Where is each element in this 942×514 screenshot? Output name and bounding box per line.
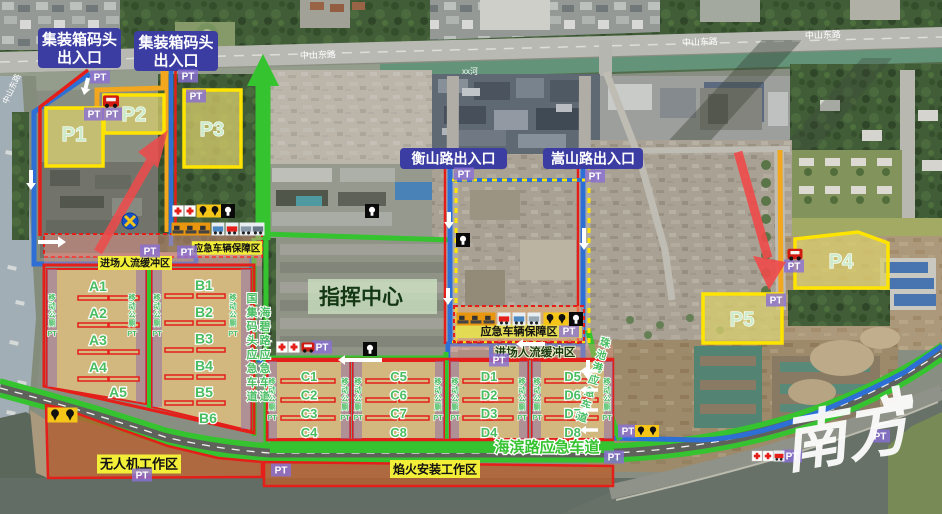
svg-text:厕: 厕 xyxy=(354,403,362,412)
svg-text:P1: P1 xyxy=(62,124,86,146)
svg-text:PT: PT xyxy=(563,327,576,338)
svg-text:厕: 厕 xyxy=(533,403,541,412)
svg-text:集: 集 xyxy=(246,305,259,319)
svg-text:厕: 厕 xyxy=(518,403,526,412)
svg-text:A4: A4 xyxy=(89,359,107,375)
svg-text:PT: PT xyxy=(47,329,57,338)
svg-text:B4: B4 xyxy=(195,357,213,373)
svg-text:国: 国 xyxy=(247,292,258,305)
svg-text:动: 动 xyxy=(451,385,459,395)
svg-text:中山东路: 中山东路 xyxy=(805,28,841,40)
svg-text:PT: PT xyxy=(182,72,195,83)
svg-text:PT: PT xyxy=(316,343,329,354)
svg-text:PT: PT xyxy=(94,73,107,84)
svg-text:A2: A2 xyxy=(89,305,107,321)
svg-text:出入口: 出入口 xyxy=(153,51,198,69)
svg-text:动: 动 xyxy=(533,385,541,395)
svg-text:PT: PT xyxy=(788,262,801,273)
svg-text:动: 动 xyxy=(603,385,611,395)
svg-text:PT: PT xyxy=(127,329,137,338)
svg-text:B1: B1 xyxy=(195,277,213,293)
svg-text:P4: P4 xyxy=(829,251,854,273)
svg-text:D1: D1 xyxy=(481,369,498,384)
svg-text:移: 移 xyxy=(603,376,611,386)
svg-text:动: 动 xyxy=(229,301,237,311)
svg-text:厕: 厕 xyxy=(153,319,161,328)
svg-text:B6: B6 xyxy=(199,410,217,426)
svg-text:B3: B3 xyxy=(195,331,213,347)
svg-text:出入口: 出入口 xyxy=(57,48,102,66)
svg-text:车: 车 xyxy=(247,375,258,389)
svg-text:PT: PT xyxy=(136,471,149,482)
svg-text:应: 应 xyxy=(260,347,271,361)
svg-text:C6: C6 xyxy=(390,388,407,403)
svg-text:P3: P3 xyxy=(200,119,224,141)
svg-text:C5: C5 xyxy=(390,369,407,384)
svg-text:PT: PT xyxy=(589,172,602,183)
svg-text:急: 急 xyxy=(247,361,258,375)
svg-text:移: 移 xyxy=(341,376,349,386)
svg-text:急: 急 xyxy=(260,361,271,375)
svg-text:PT: PT xyxy=(450,413,460,422)
svg-text:PT: PT xyxy=(106,110,119,121)
svg-text:动: 动 xyxy=(518,385,526,395)
svg-text:C1: C1 xyxy=(301,369,318,384)
svg-text:厕: 厕 xyxy=(341,403,349,412)
svg-text:应急车辆保障区: 应急车辆保障区 xyxy=(481,324,558,338)
svg-text:焰火安装工作区: 焰火安装工作区 xyxy=(393,461,477,476)
svg-text:动: 动 xyxy=(128,301,136,311)
svg-text:移: 移 xyxy=(153,292,161,302)
svg-text:B2: B2 xyxy=(195,304,213,320)
svg-text:D2: D2 xyxy=(481,388,498,403)
svg-text:PT: PT xyxy=(532,413,542,422)
svg-text:衡山路出入口: 衡山路出入口 xyxy=(412,151,496,167)
svg-text:道: 道 xyxy=(247,389,258,403)
svg-text:PT: PT xyxy=(770,296,783,307)
svg-text:移: 移 xyxy=(128,292,136,302)
svg-text:PT: PT xyxy=(144,247,157,258)
svg-text:中山东路: 中山东路 xyxy=(300,48,336,60)
svg-text:移: 移 xyxy=(451,376,459,386)
svg-text:PT: PT xyxy=(433,413,443,422)
svg-text:碧: 碧 xyxy=(259,319,271,333)
svg-text:PT: PT xyxy=(275,466,288,477)
svg-text:应急车辆保障区: 应急车辆保障区 xyxy=(194,242,261,254)
svg-text:移: 移 xyxy=(518,376,526,386)
svg-text:动: 动 xyxy=(341,385,349,395)
svg-text:PT: PT xyxy=(622,427,635,438)
svg-text:P5: P5 xyxy=(730,309,754,331)
svg-text:PT: PT xyxy=(228,329,238,338)
svg-text:PT: PT xyxy=(608,453,621,464)
svg-text:指挥中心: 指挥中心 xyxy=(319,286,403,309)
svg-text:A3: A3 xyxy=(89,332,107,348)
svg-text:A5: A5 xyxy=(109,384,127,400)
svg-text:B5: B5 xyxy=(195,384,213,400)
svg-text:C4: C4 xyxy=(301,425,318,440)
svg-text:进场人流缓冲区: 进场人流缓冲区 xyxy=(100,257,170,270)
svg-text:D4: D4 xyxy=(481,425,498,440)
svg-text:海滨路应急车道: 海滨路应急车道 xyxy=(494,438,599,456)
svg-text:P2: P2 xyxy=(122,104,146,126)
svg-text:PT: PT xyxy=(602,413,612,422)
svg-text:移: 移 xyxy=(268,376,276,386)
svg-text:xx河: xx河 xyxy=(462,66,478,76)
svg-text:C8: C8 xyxy=(390,425,407,440)
svg-text:PT: PT xyxy=(340,413,350,422)
svg-text:码: 码 xyxy=(247,320,258,333)
svg-text:动: 动 xyxy=(434,385,442,395)
svg-text:路: 路 xyxy=(260,333,272,347)
svg-text:移: 移 xyxy=(48,292,56,302)
svg-text:集装箱码头: 集装箱码头 xyxy=(41,30,117,48)
svg-text:C3: C3 xyxy=(301,406,318,421)
svg-text:动: 动 xyxy=(48,301,56,311)
svg-text:厕: 厕 xyxy=(268,403,276,412)
svg-text:厕: 厕 xyxy=(229,319,237,328)
svg-text:D8: D8 xyxy=(564,425,581,440)
svg-text:移: 移 xyxy=(354,376,362,386)
svg-text:移: 移 xyxy=(229,292,237,302)
svg-text:PT: PT xyxy=(353,413,363,422)
svg-text:PT: PT xyxy=(267,413,277,422)
svg-text:厕: 厕 xyxy=(451,403,459,412)
svg-text:嵩山路出入口: 嵩山路出入口 xyxy=(551,151,635,167)
svg-text:PT: PT xyxy=(152,329,162,338)
svg-text:厕: 厕 xyxy=(128,319,136,328)
svg-text:动: 动 xyxy=(153,301,161,311)
svg-text:移: 移 xyxy=(533,376,541,386)
svg-text:动: 动 xyxy=(354,385,362,395)
svg-text:集装箱码头: 集装箱码头 xyxy=(137,33,213,51)
svg-text:动: 动 xyxy=(268,385,276,395)
svg-text:PT: PT xyxy=(190,92,203,103)
svg-text:厕: 厕 xyxy=(603,403,611,412)
svg-text:中山东路: 中山东路 xyxy=(682,35,718,47)
svg-text:头: 头 xyxy=(247,333,258,347)
svg-text:应: 应 xyxy=(247,347,258,361)
svg-text:厕: 厕 xyxy=(434,403,442,412)
svg-text:PT: PT xyxy=(458,170,471,181)
svg-text:D3: D3 xyxy=(481,406,498,421)
svg-text:厕: 厕 xyxy=(48,319,56,328)
svg-text:D5: D5 xyxy=(564,369,581,384)
svg-text:移: 移 xyxy=(434,376,442,386)
svg-text:A1: A1 xyxy=(89,278,107,294)
svg-text:海: 海 xyxy=(260,305,271,319)
svg-text:PT: PT xyxy=(493,356,506,367)
svg-text:PT: PT xyxy=(88,110,101,121)
svg-text:D6: D6 xyxy=(564,388,581,403)
svg-text:C7: C7 xyxy=(390,406,407,421)
svg-text:PT: PT xyxy=(517,413,527,422)
svg-text:C2: C2 xyxy=(301,388,318,403)
svg-text:PT: PT xyxy=(181,248,194,259)
